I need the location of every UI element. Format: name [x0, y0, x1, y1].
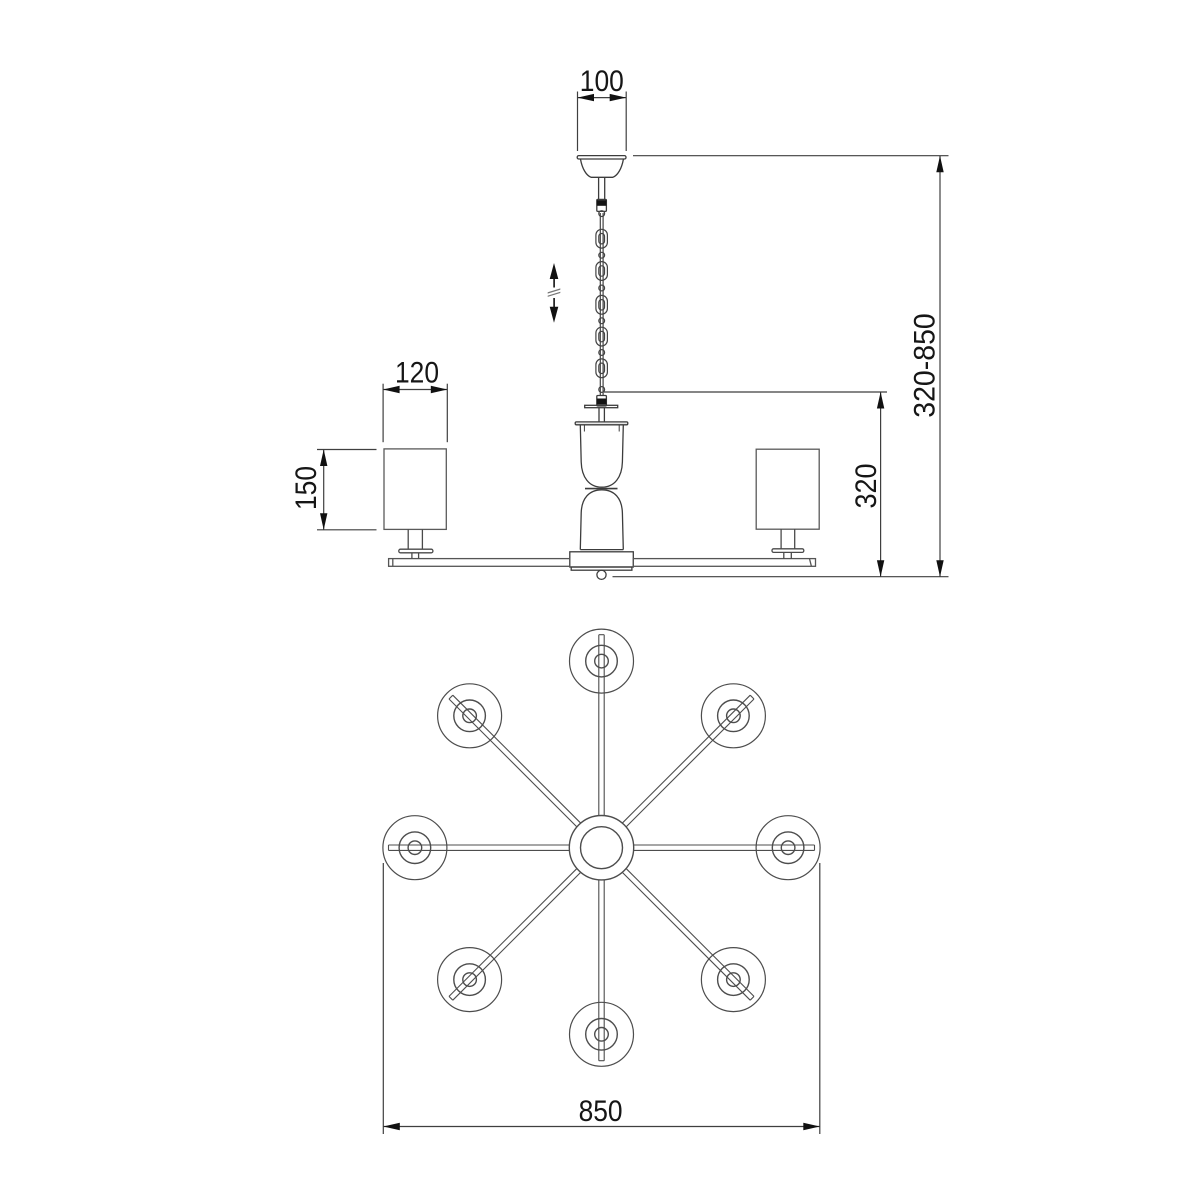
svg-text:120: 120 — [395, 355, 439, 389]
svg-text:320: 320 — [850, 463, 884, 508]
svg-text:850: 850 — [579, 1093, 623, 1127]
svg-text:320-850: 320-850 — [909, 313, 942, 418]
svg-text:100: 100 — [580, 63, 624, 97]
svg-text:150: 150 — [288, 466, 322, 510]
